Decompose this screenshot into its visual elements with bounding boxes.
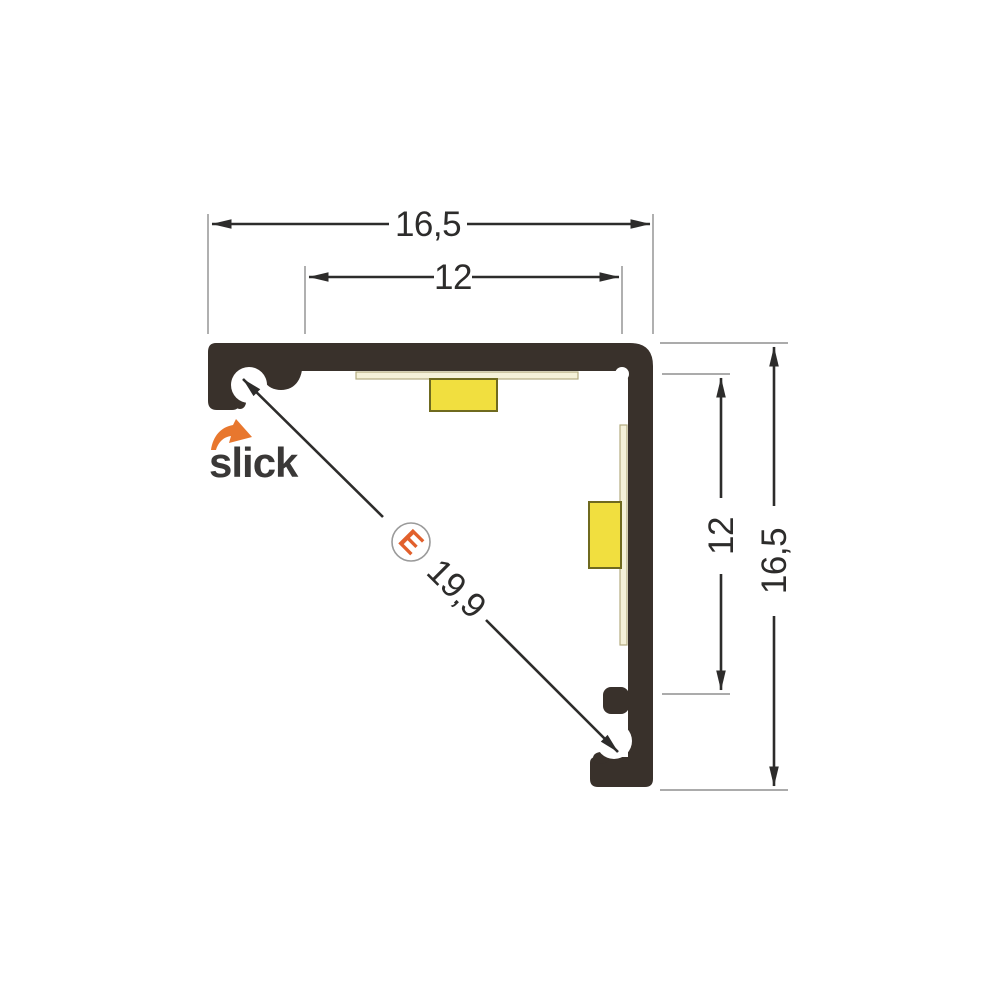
dimension-label-right-outer: 16,5: [755, 528, 794, 594]
dimension-right-inner: 12: [662, 374, 741, 694]
led-strips: [356, 372, 627, 645]
dimension-top-outer: 16,5: [208, 205, 653, 334]
dimension-diagonal: E 19,9: [243, 379, 618, 752]
dimension-line: [486, 620, 618, 752]
corner-clip-groove: [615, 367, 629, 381]
profile-side-rib: [603, 687, 629, 714]
dimension-right-outer: 16,5: [660, 343, 794, 790]
brand-logo: slick: [209, 419, 299, 486]
dimension-label-top-outer: 16,5: [395, 205, 461, 244]
technical-drawing-page: 16,5 12 12 16,5 E 19,9 slick: [0, 0, 1000, 1000]
profile-drawing-svg: 16,5 12 12 16,5 E 19,9 slick: [0, 0, 1000, 1000]
led-chip-right: [589, 502, 621, 568]
logo-wordmark: slick: [209, 439, 299, 486]
pcb-strip-top: [356, 372, 578, 379]
dimension-label-right-inner: 12: [702, 517, 741, 555]
dimension-label-diagonal: 19,9: [419, 551, 493, 625]
led-chip-top: [430, 379, 497, 411]
dimension-top-inner: 12: [305, 258, 622, 334]
dimension-label-top-inner: 12: [434, 258, 472, 297]
screw-groove-bottom-right: [596, 723, 632, 759]
